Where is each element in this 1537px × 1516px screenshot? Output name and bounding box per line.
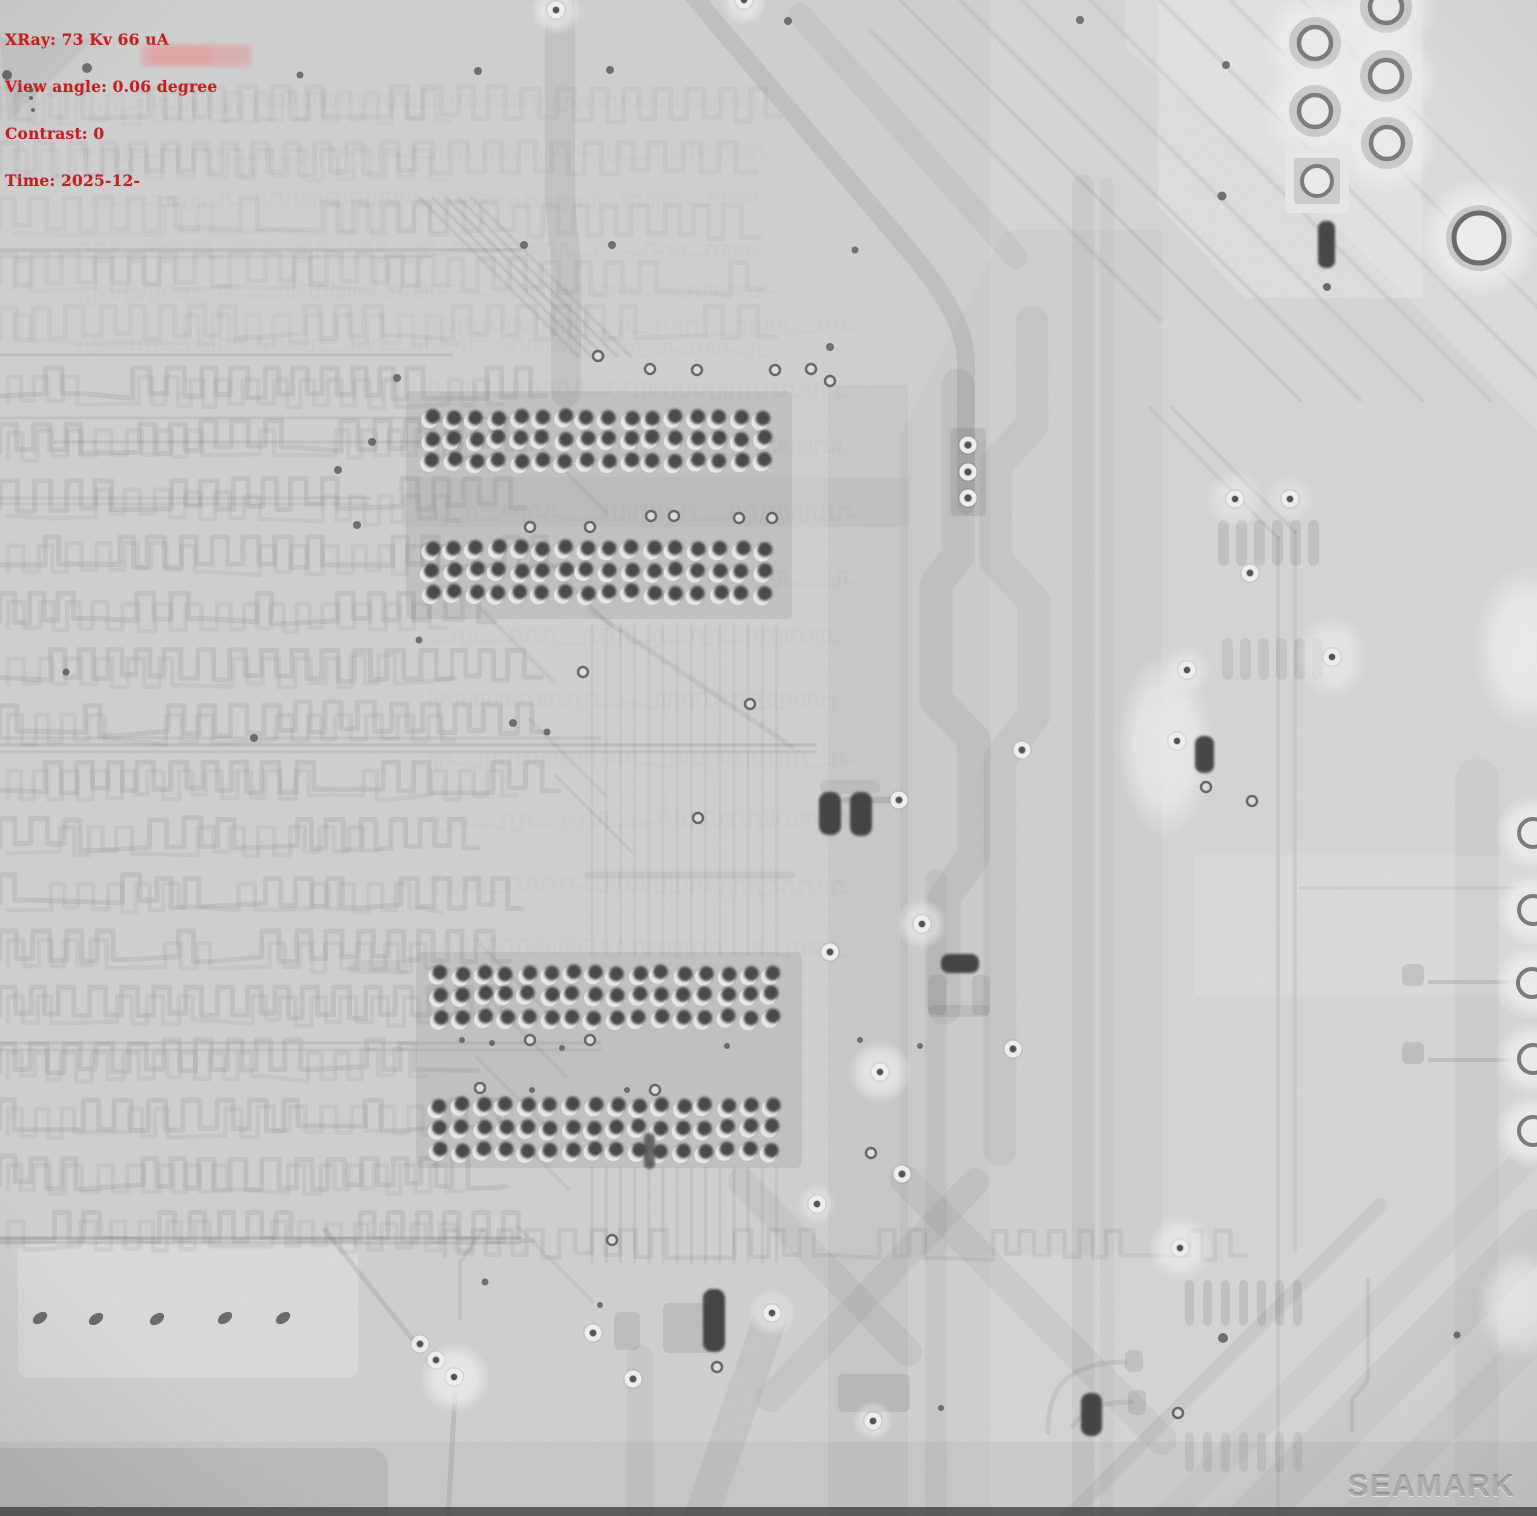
seamark-watermark: SEAMARK bbox=[1348, 1468, 1515, 1504]
vignette bbox=[0, 0, 1537, 1516]
acquisition-overlay: XRay: 73 Kv 66 uA View angle: 0.06 degre… bbox=[5, 1, 217, 219]
overlay-contrast: Contrast: 0 bbox=[5, 126, 217, 142]
radiograph-image bbox=[0, 0, 1537, 1516]
image-bottom-edge bbox=[0, 1507, 1537, 1516]
xray-viewer-screen: XRay: 73 Kv 66 uA View angle: 0.06 degre… bbox=[0, 0, 1537, 1516]
redaction-blur-inner bbox=[150, 47, 212, 64]
overlay-view-angle: View angle: 0.06 degree bbox=[5, 79, 217, 95]
overlay-time: Time: 2025-12- bbox=[5, 173, 217, 189]
